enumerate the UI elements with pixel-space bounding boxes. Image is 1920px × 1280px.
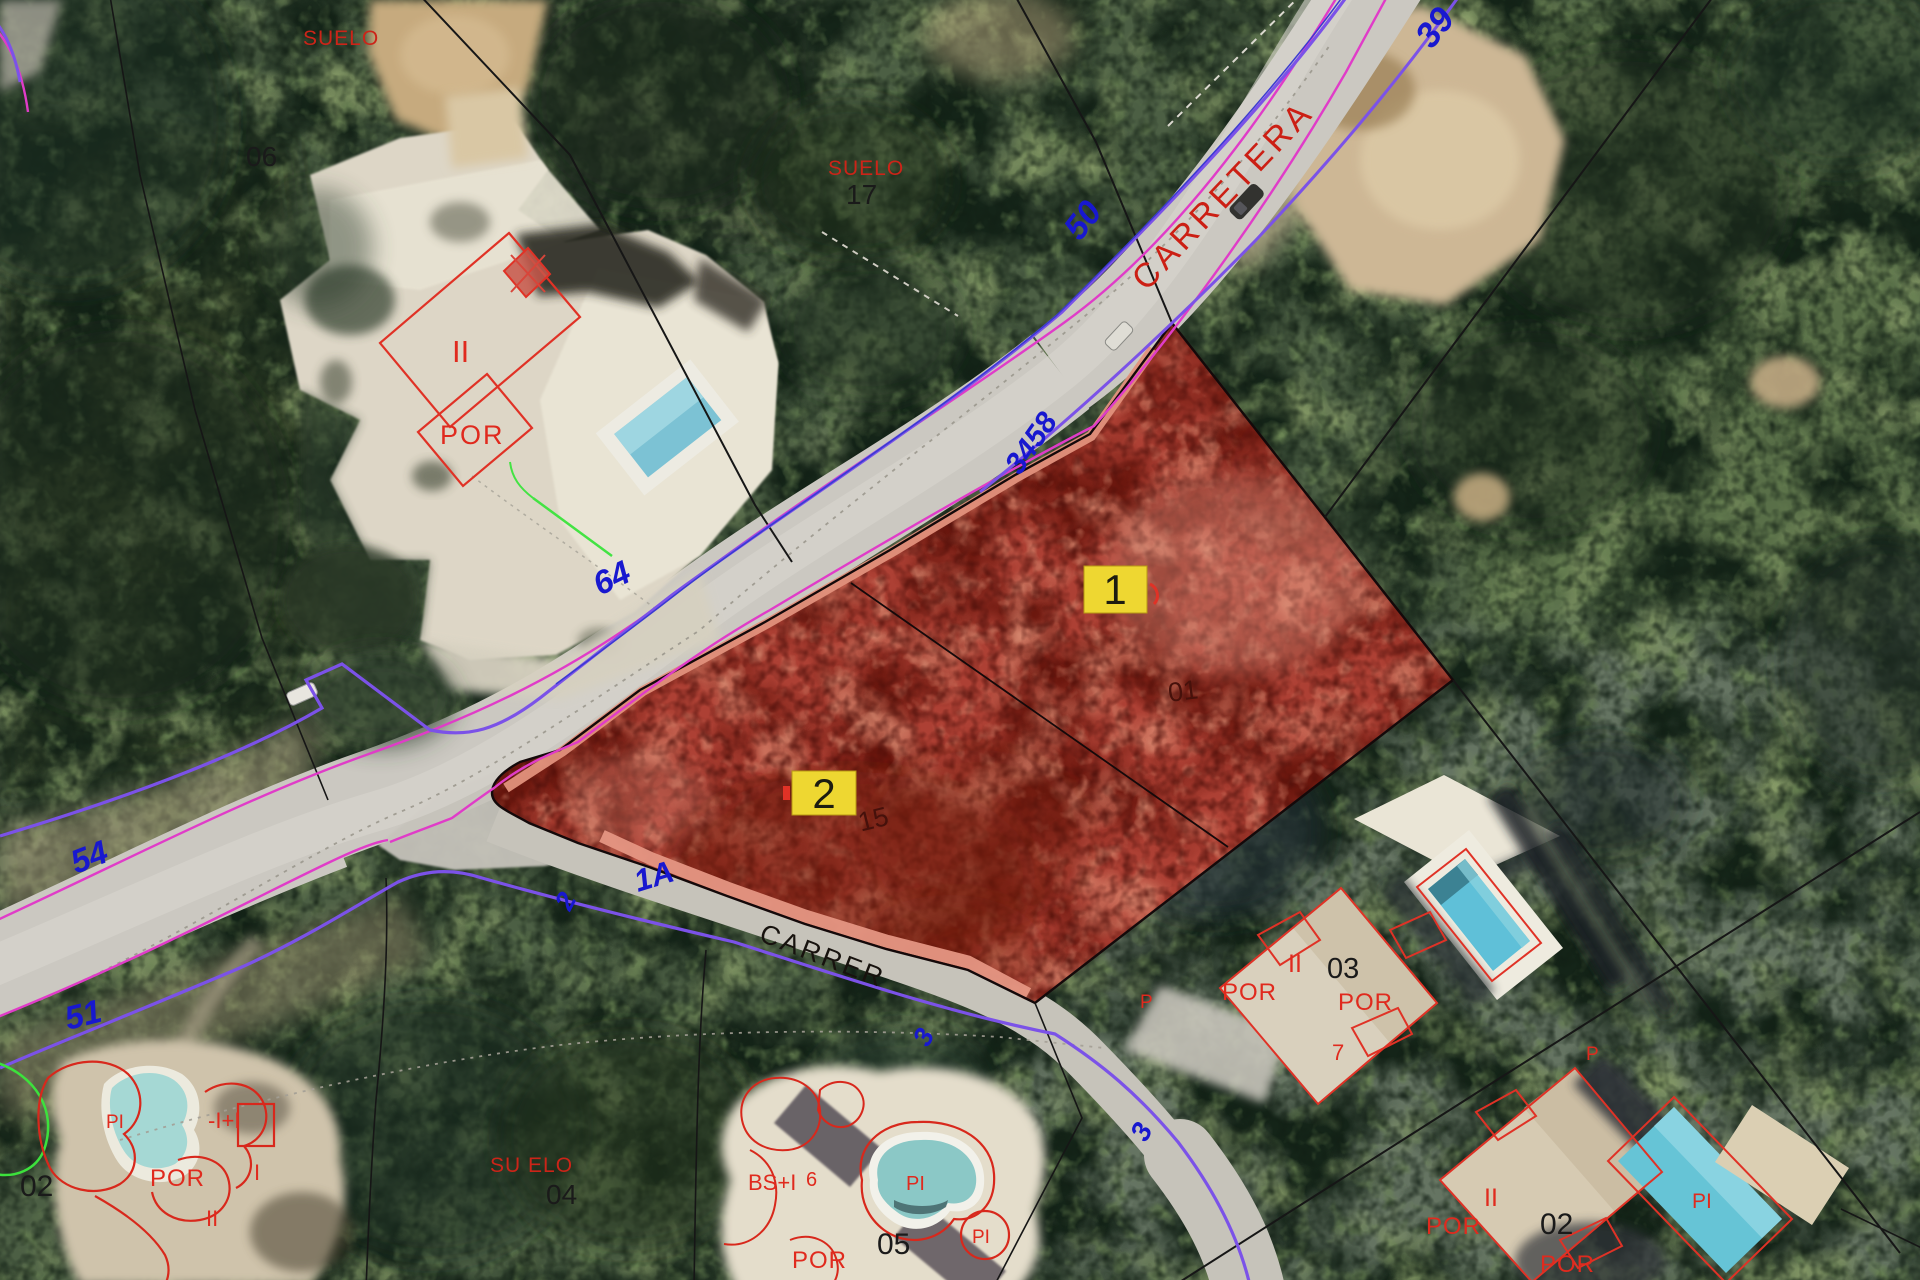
svg-text:03: 03 [1327,953,1359,985]
svg-text:POR: POR [1222,979,1277,1006]
svg-text:PI: PI [972,1227,990,1248]
svg-text:01: 01 [1166,674,1199,707]
svg-text:06: 06 [246,141,277,172]
svg-text:POR: POR [440,420,505,450]
svg-text:17: 17 [846,179,877,210]
svg-text:PI: PI [906,1173,925,1195]
svg-text:SU ELO: SU ELO [490,1154,573,1177]
svg-text:P: P [1140,992,1153,1013]
svg-text:II: II [764,1276,776,1280]
svg-text:II: II [452,334,469,369]
svg-text:P: P [1586,1044,1599,1065]
svg-text:POR: POR [792,1247,847,1274]
svg-text:2: 2 [812,770,835,817]
svg-text:-I+I: -I+I [208,1108,240,1133]
svg-text:POR: POR [1338,989,1393,1016]
svg-text:BS+I: BS+I [748,1170,796,1195]
svg-text:1: 1 [1103,566,1126,613]
svg-text:I: I [254,1160,260,1185]
svg-text:II: II [206,1206,218,1231]
svg-text:II: II [1288,950,1302,978]
svg-text:6: 6 [806,1169,817,1191]
svg-text:PI: PI [1692,1190,1712,1213]
svg-text:7: 7 [1332,1040,1344,1065]
svg-text:II: II [1484,1184,1498,1212]
svg-text:POR: POR [1426,1213,1481,1240]
svg-text:02: 02 [20,1170,53,1203]
svg-text:SUELO: SUELO [303,27,379,50]
svg-text:02: 02 [1540,1208,1573,1241]
svg-text:POR: POR [1540,1251,1595,1278]
svg-text:04: 04 [546,1179,577,1210]
svg-text:PI: PI [106,1112,124,1133]
svg-text:SUELO: SUELO [828,157,904,180]
svg-text:POR: POR [150,1165,205,1192]
svg-text:05: 05 [877,1228,910,1261]
